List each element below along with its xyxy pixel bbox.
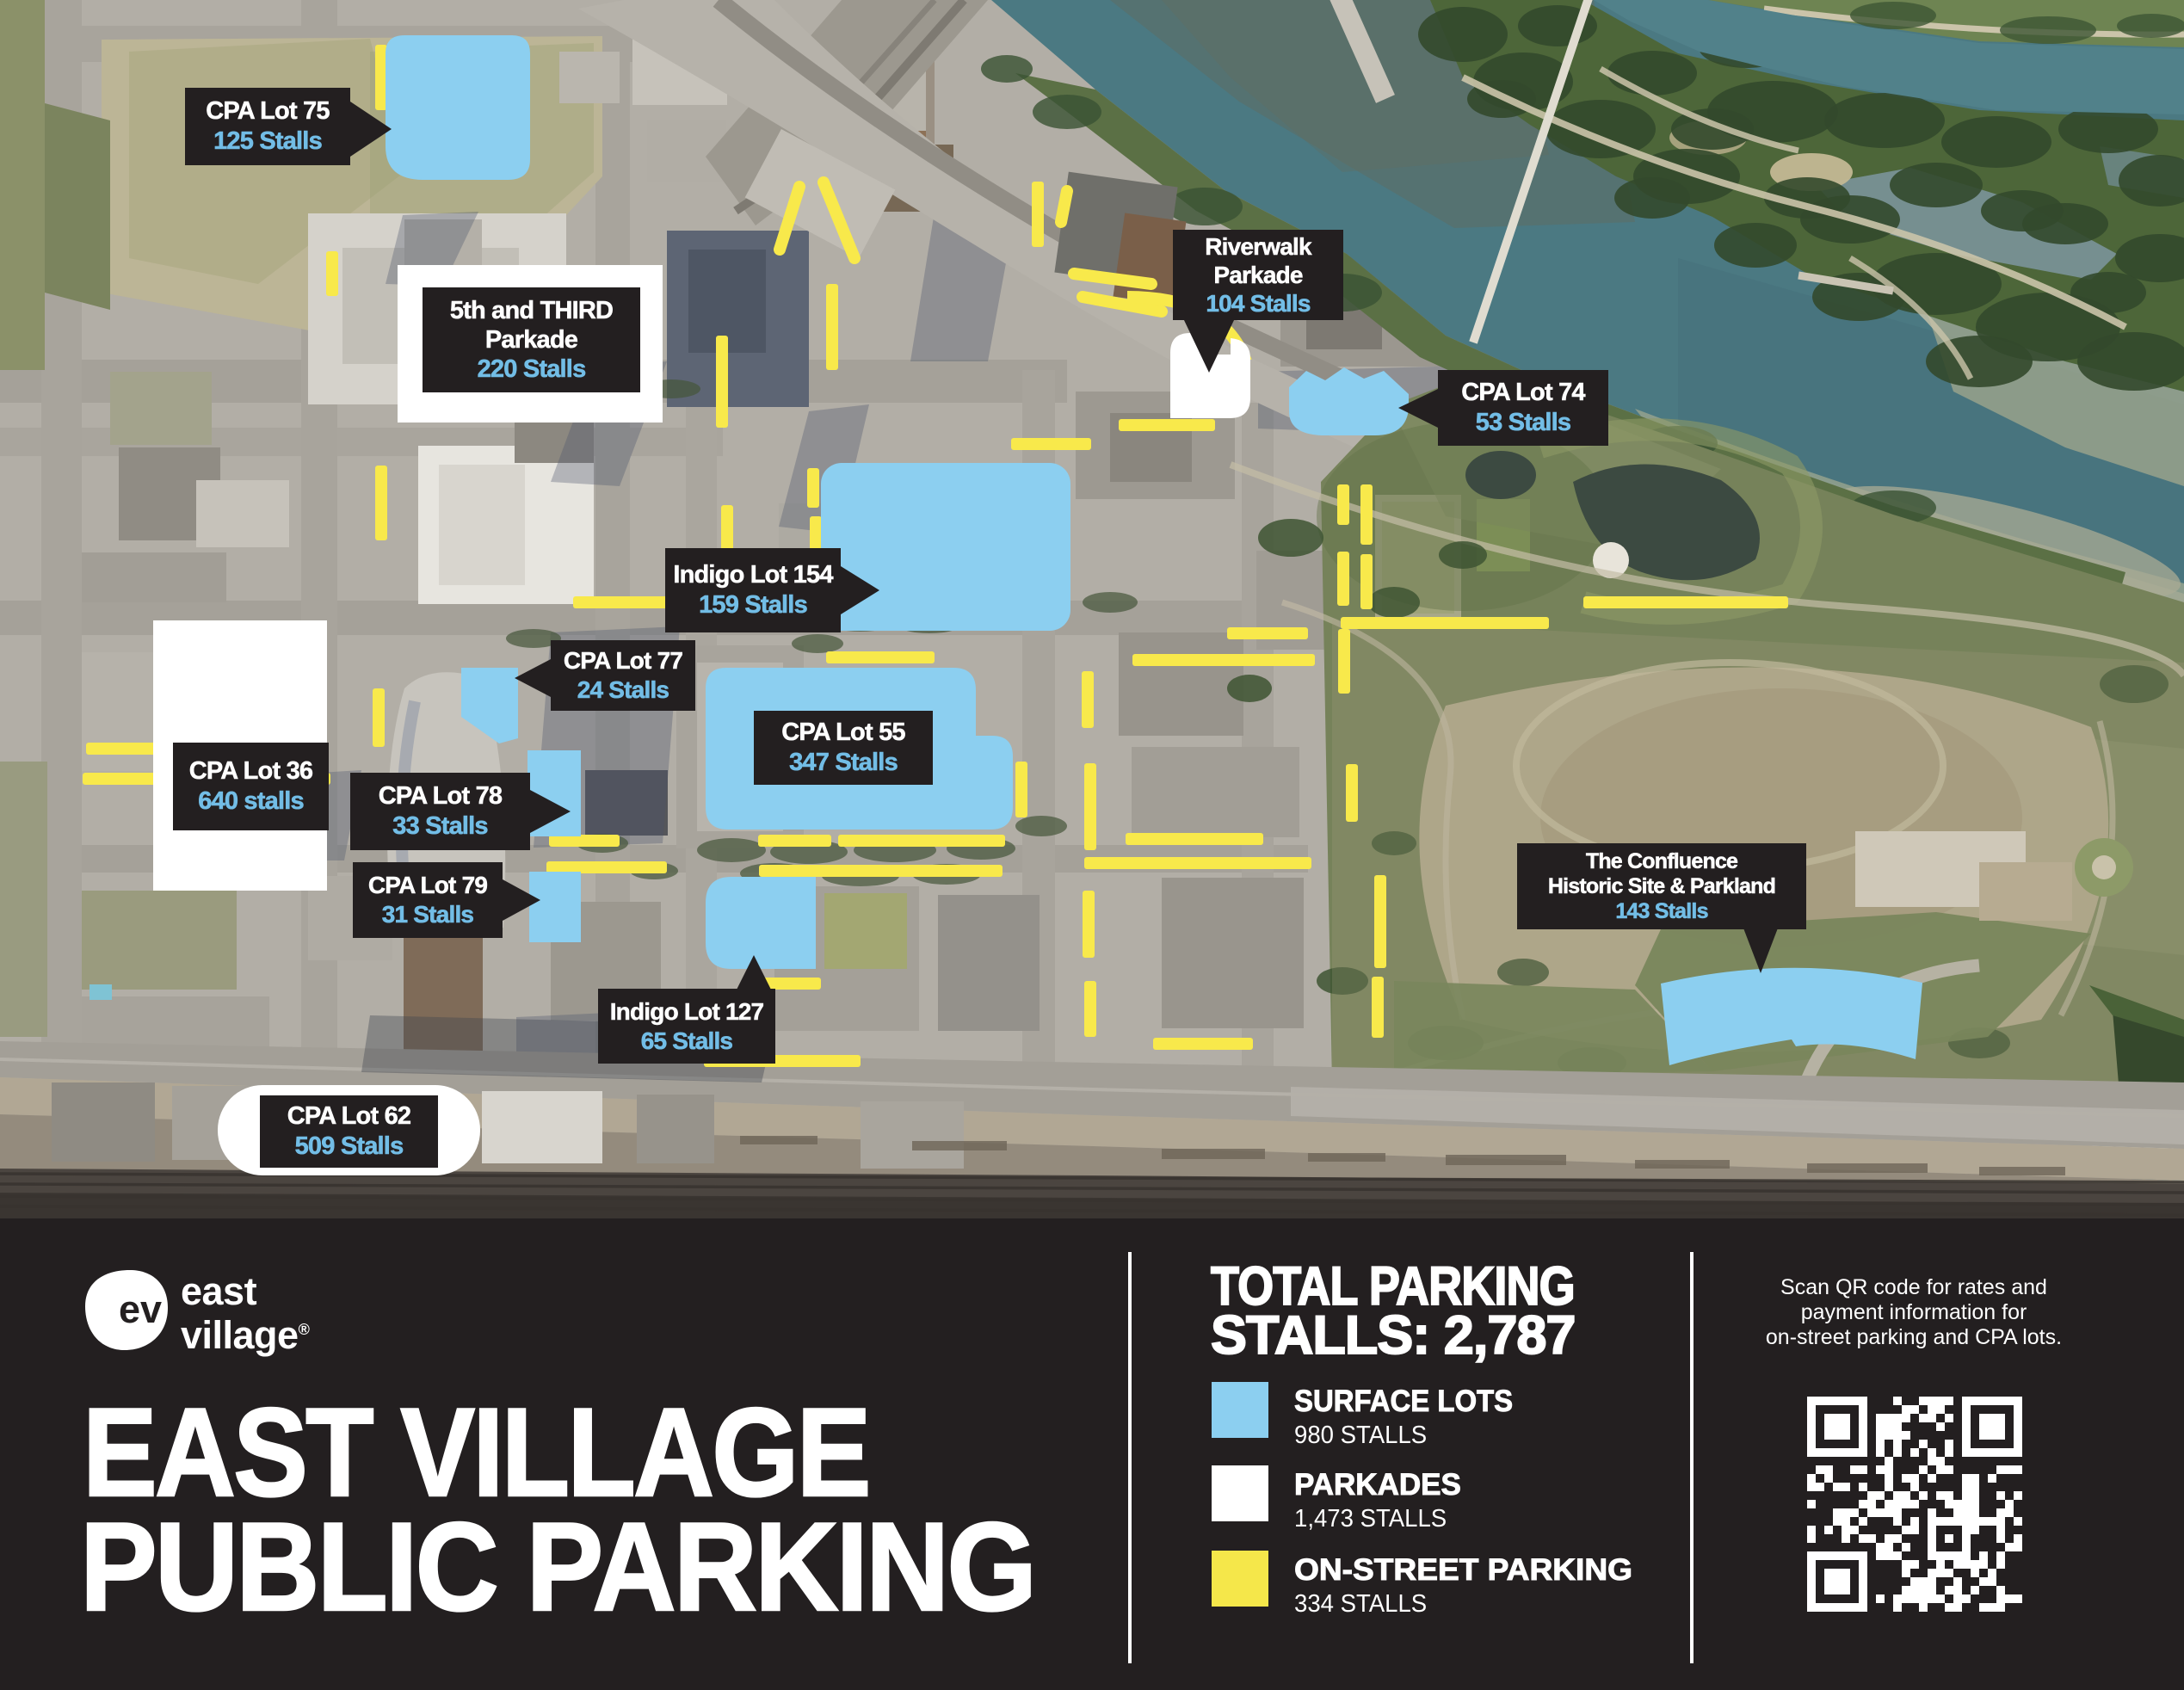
svg-text:ev: ev xyxy=(119,1287,162,1331)
